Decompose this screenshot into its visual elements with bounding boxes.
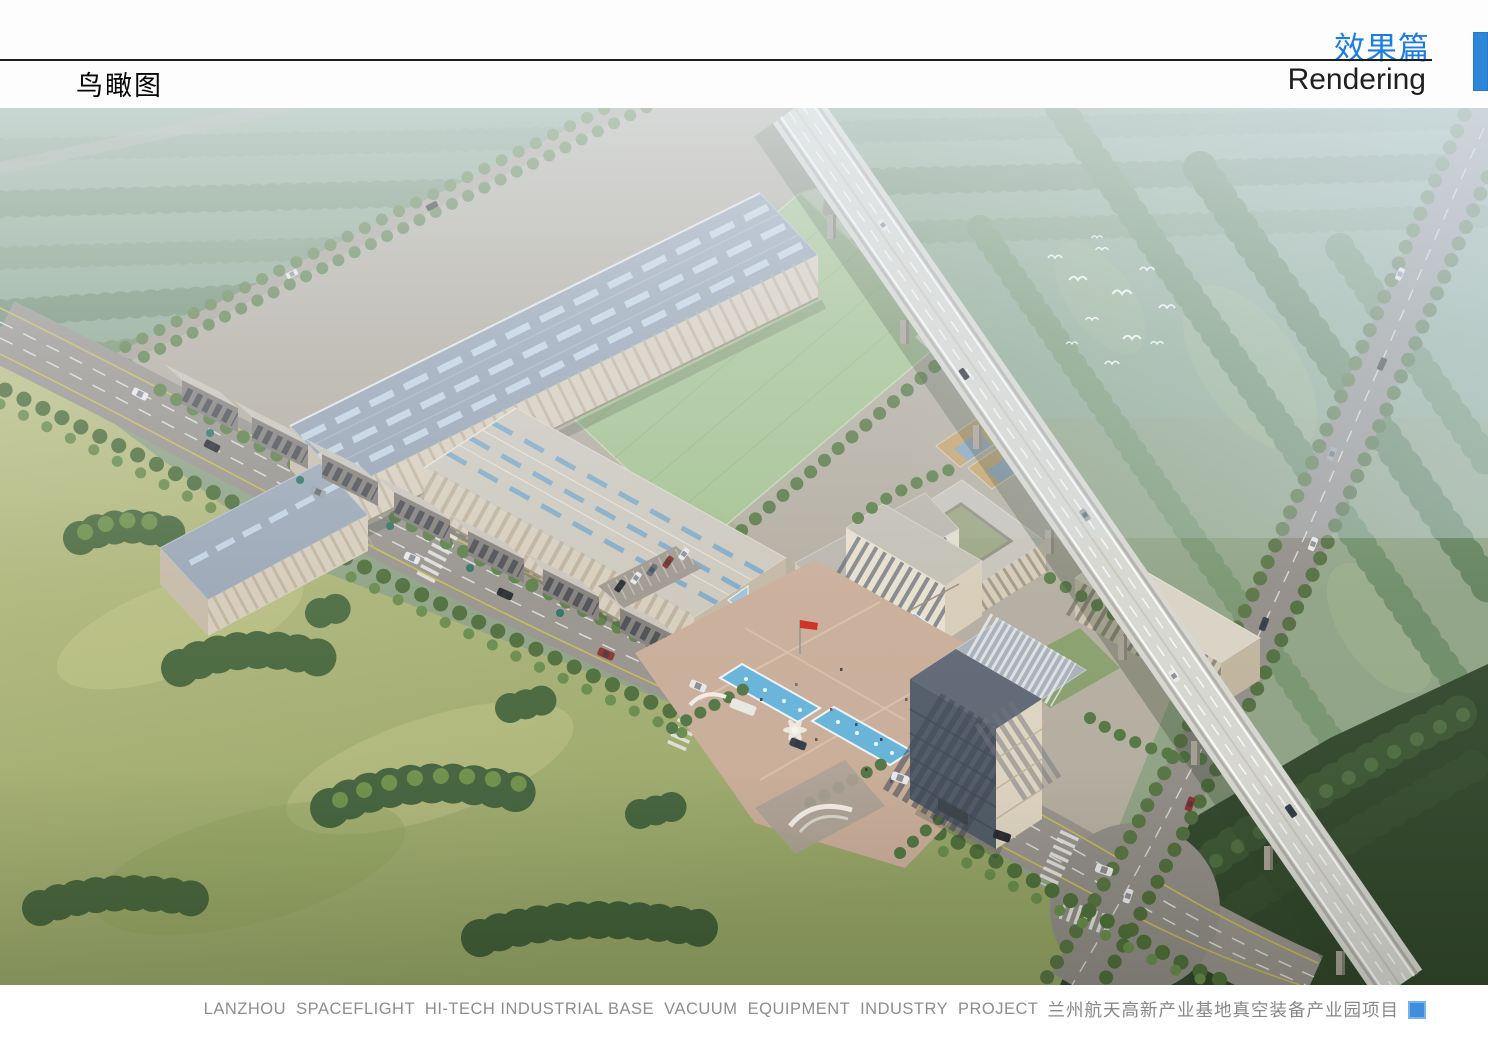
section-title-en: Rendering <box>1288 63 1426 97</box>
caption-row: LANZHOU SPACEFLIGHT HI-TECH INDUSTRIAL B… <box>204 997 1426 1022</box>
section-title-cn: 效果篇 <box>1334 23 1430 68</box>
presentation-page: 效果篇 Rendering 鸟瞰图 <box>0 0 1488 1052</box>
header-accent-bar <box>1473 32 1488 91</box>
haze-overlay <box>0 108 1488 985</box>
page-header: 效果篇 Rendering 鸟瞰图 <box>0 0 1488 108</box>
aerial-rendering <box>0 108 1488 985</box>
header-rule <box>0 59 1432 61</box>
caption-en: LANZHOU SPACEFLIGHT HI-TECH INDUSTRIAL B… <box>204 1000 1039 1019</box>
page-title: 鸟瞰图 <box>76 64 163 103</box>
page-footer: LANZHOU SPACEFLIGHT HI-TECH INDUSTRIAL B… <box>0 985 1488 1052</box>
caption-marker-square <box>1408 1001 1426 1019</box>
caption-cn: 兰州航天高新产业基地真空装备产业园项目 <box>1048 997 1400 1022</box>
